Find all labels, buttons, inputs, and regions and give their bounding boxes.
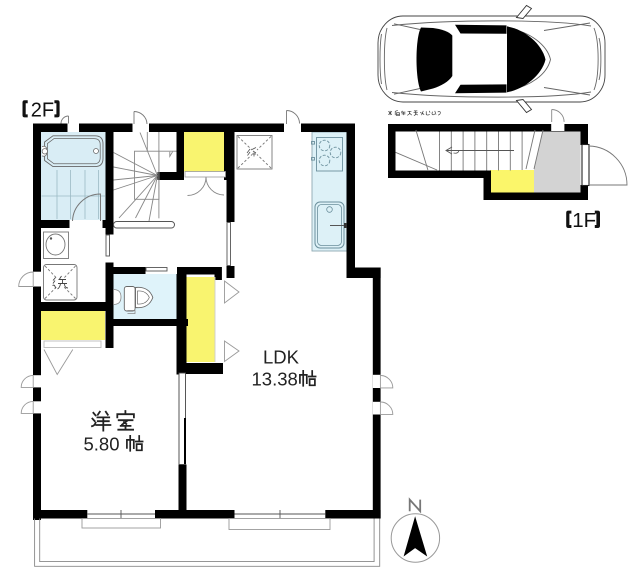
svg-text:LDK: LDK — [263, 347, 300, 368]
svg-text:13.38: 13.38 — [252, 369, 298, 390]
svg-text:1F: 1F — [572, 209, 596, 232]
svg-text:5.80: 5.80 — [84, 434, 120, 455]
svg-text:2F: 2F — [31, 99, 54, 121]
